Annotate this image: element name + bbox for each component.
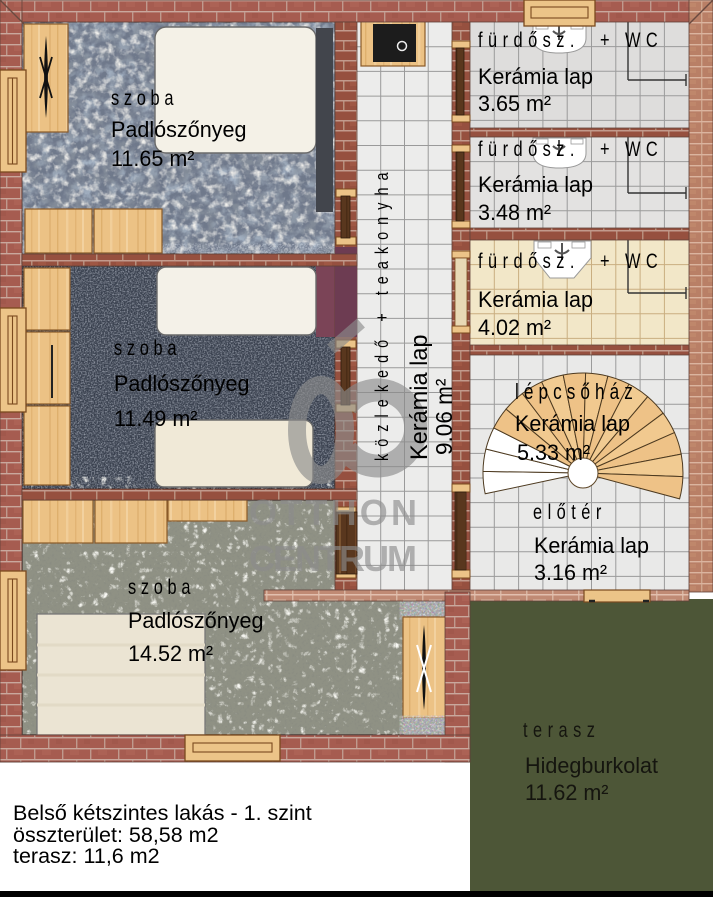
svg-text:OTTHON: OTTHON xyxy=(249,492,417,533)
svg-text:CENTRUM: CENTRUM xyxy=(249,538,417,579)
